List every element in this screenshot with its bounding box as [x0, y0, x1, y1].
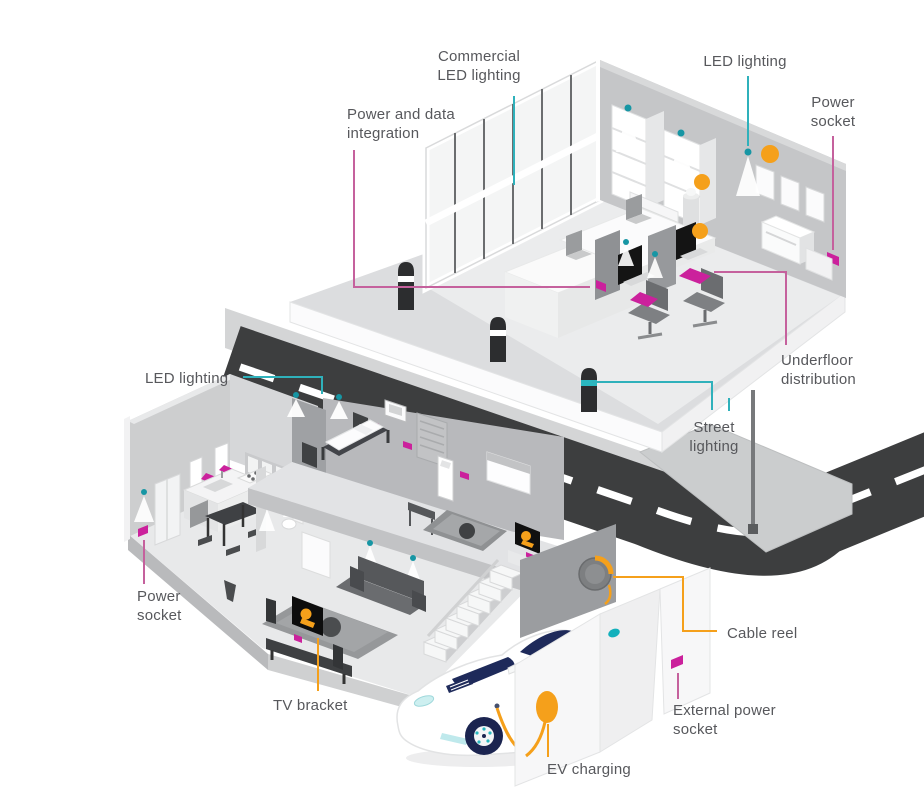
- tv-logo-icon: [521, 531, 531, 541]
- label-underfloor-distribution: Underfloor distribution: [781, 351, 856, 389]
- charge-port: [495, 704, 500, 709]
- led-downlight-icon: [623, 239, 629, 245]
- label-led-lighting-house: LED lighting: [145, 369, 228, 388]
- label-ev-charging: EV charging: [547, 760, 631, 779]
- underfloor-outlet-icon: [459, 523, 475, 539]
- led-downlight-icon: [678, 130, 685, 137]
- label-power-socket-office: Power socket: [773, 93, 893, 131]
- isometric-smart-building-diagram: Commercial LED lighting LED lighting Pow…: [0, 0, 924, 789]
- label-street-lighting: Street lighting: [654, 418, 774, 456]
- led-downlight-icon: [367, 540, 373, 546]
- led-downlight-icon: [652, 251, 658, 257]
- bollard-street-lighting: [581, 368, 597, 412]
- speaker: [266, 598, 276, 624]
- label-tv-bracket: TV bracket: [273, 696, 348, 715]
- garage-gable-wall: [600, 589, 660, 752]
- label-external-power-socket: External power socket: [673, 701, 776, 739]
- label-led-lighting-office: LED lighting: [665, 52, 825, 71]
- underfloor-outlet-icon: [321, 617, 341, 637]
- label-power-socket-house: Power socket: [137, 587, 182, 625]
- orange-accessory-icon: [694, 174, 710, 190]
- led-downlight-icon: [410, 555, 416, 561]
- bollard: [490, 317, 506, 362]
- label-commercial-led-lighting: Commercial LED lighting: [398, 47, 560, 85]
- desk-divider: [595, 230, 620, 300]
- orange-accessory-icon: [761, 145, 779, 163]
- garage-right-wall: [660, 568, 710, 714]
- led-downlight-icon: [745, 149, 752, 156]
- led-downlight-icon: [625, 105, 632, 112]
- speaker: [333, 644, 343, 670]
- led-pendant-icon: [293, 392, 299, 398]
- wheel: [465, 717, 503, 755]
- led-pendant-icon: [336, 394, 342, 400]
- label-cable-reel: Cable reel: [727, 624, 797, 643]
- orange-accessory-icon: [692, 223, 708, 239]
- led-downlight-icon: [141, 489, 147, 495]
- tv-logo-icon: [301, 609, 312, 620]
- label-power-and-data-integration: Power and data integration: [347, 105, 455, 143]
